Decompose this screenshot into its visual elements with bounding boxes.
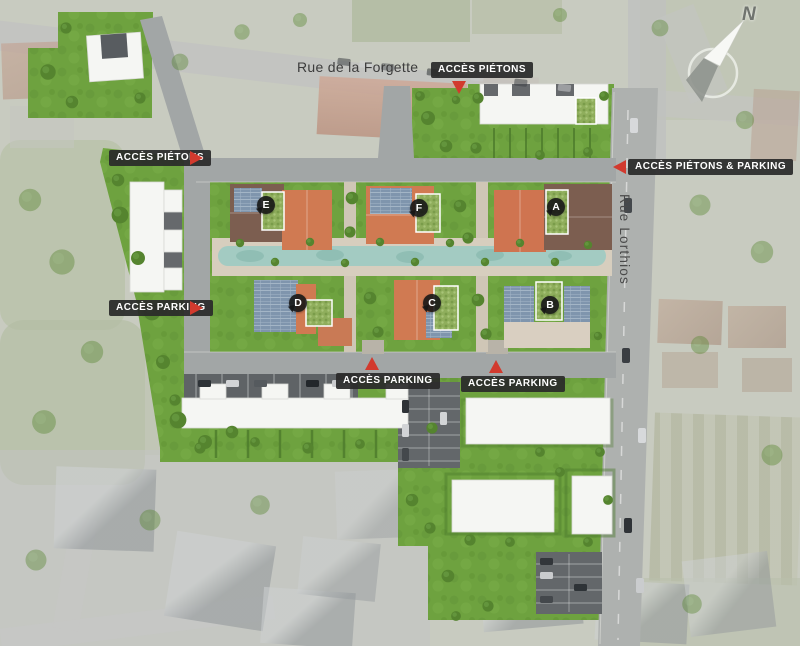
site-plan: Rue de la Forgette Rue Lorthios ACCÈS PI…	[0, 0, 800, 646]
building-marker-e[interactable]: E	[257, 196, 275, 214]
access-badge-pietons-top: ACCÈS PIÉTONS	[431, 62, 533, 78]
building-marker-b[interactable]: B	[541, 296, 559, 314]
building-marker-c[interactable]: C	[423, 294, 441, 312]
street-label-rue-lorthios: Rue Lorthios	[617, 194, 632, 285]
compass	[686, 20, 744, 102]
access-arrow-up-icon	[489, 360, 503, 373]
street-label-rue-de-la-forgette: Rue de la Forgette	[297, 59, 418, 75]
building-marker-f[interactable]: F	[410, 199, 428, 217]
compass-needle-icon	[704, 20, 744, 66]
masterplan-graphics	[0, 0, 800, 646]
compass-north-label: N	[742, 4, 756, 26]
access-badge-pietons-parking-right: ACCÈS PIÉTONS & PARKING	[628, 159, 793, 175]
access-arrow-right-icon	[190, 151, 203, 165]
access-badge-parking-bottom-east: ACCÈS PARKING	[461, 376, 565, 392]
access-badge-parking-bottom-west: ACCÈS PARKING	[336, 373, 440, 389]
access-arrow-right-icon	[190, 301, 203, 315]
access-arrow-left-icon	[613, 160, 626, 174]
building-marker-d[interactable]: D	[289, 294, 307, 312]
building-marker-a[interactable]: A	[547, 198, 565, 216]
access-arrow-down-icon	[452, 81, 466, 94]
access-arrow-up-icon	[365, 357, 379, 370]
